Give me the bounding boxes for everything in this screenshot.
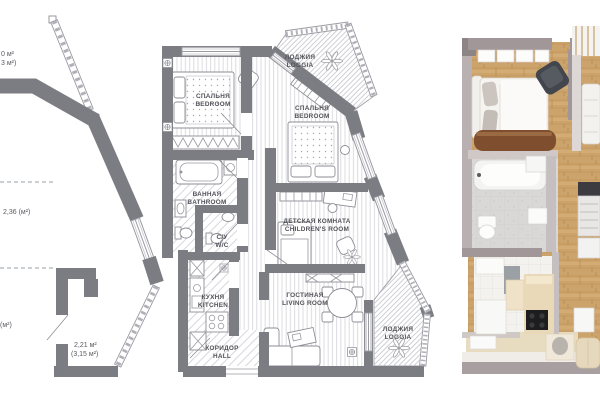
wardrobe (166, 136, 239, 149)
hall-closet (190, 332, 206, 350)
room-label-en: HALL (213, 353, 231, 360)
shelf (280, 192, 322, 201)
toilet (175, 227, 192, 239)
room-label-ru: ГОСТИНАЯ (286, 292, 323, 299)
room-label-ru: ВАННАЯ (193, 191, 222, 198)
render-bath-sink (528, 208, 547, 224)
room-label-ru: С/У (216, 234, 228, 241)
wc-sink (222, 213, 234, 222)
area-label: 3 м²) (1, 60, 16, 67)
left-plan-walls (0, 16, 159, 377)
render-hall-console (546, 334, 574, 360)
dining-table (322, 287, 363, 322)
sink (175, 200, 186, 217)
room-label-en: BEDROOM (195, 101, 230, 108)
wall-vent-icon (163, 59, 172, 68)
render-toilet (478, 216, 496, 239)
room-label-en: KITCHEN (198, 302, 228, 309)
room-label-ru: СПАЛЬНЯ (196, 93, 230, 100)
fridge (190, 260, 204, 276)
room-label-ru: СПАЛЬНЯ (295, 105, 329, 112)
room-label-ru: ЛОДЖИЯ (285, 54, 316, 61)
room-label-ru: ДЕТСКАЯ КОМНАТА (283, 218, 350, 225)
render-washer (526, 156, 546, 172)
wall-vent-icon (163, 123, 172, 132)
room-label-ru: ЛОДЖИЯ (383, 326, 414, 333)
stove (206, 312, 228, 332)
room-label-en: CHILDREN'S ROOM (285, 226, 349, 233)
nightstand (341, 146, 350, 155)
floor-plan-drawing: 0 м² 3 м²) 2,36 (м²) (м²) 2,21 м² (3,15 … (0, 0, 600, 400)
right-3d-render (462, 26, 600, 374)
floor-lamp-icon (348, 348, 357, 357)
area-label: (3,15 м²) (71, 351, 98, 358)
room-label-en: BATHROOM (187, 199, 226, 206)
area-label: 2,21 м² (74, 342, 97, 349)
room-label-en: LOGGIA (287, 62, 314, 69)
render-hall-bench (470, 336, 496, 349)
room-label-en: LOGGIA (385, 334, 412, 341)
floor-plan-sheet: 0 м² 3 м²) 2,36 (м²) (м²) 2,21 м² (3,15 … (0, 0, 600, 400)
room-label-en: LIVING ROOM (282, 300, 328, 307)
render-cooktop (526, 310, 548, 330)
double-bed-2 (288, 122, 338, 182)
double-bed-1 (172, 72, 234, 128)
room-label-en: W/C (215, 242, 228, 249)
area-label: 0 м² (1, 51, 15, 58)
left-floor-plan: 0 м² 3 м²) 2,36 (м²) (м²) 2,21 м² (3,15 … (0, 16, 159, 377)
middle-floor-plan: СПАЛЬНЯ BEDROOM ЛОДЖИЯ LOGGIA СПАЛЬНЯ BE… (162, 22, 431, 377)
area-label: (м²) (0, 322, 12, 329)
area-label: 2,36 (м²) (3, 209, 30, 216)
media-unit (306, 274, 354, 282)
room-label-en: BEDROOM (294, 113, 329, 120)
room-label-ru: КУХНЯ (202, 294, 225, 301)
bathtub (176, 160, 222, 184)
room-label-ru: КОРИДОР (205, 345, 239, 352)
render-shelf-row (478, 50, 549, 62)
render-bed (472, 76, 548, 138)
